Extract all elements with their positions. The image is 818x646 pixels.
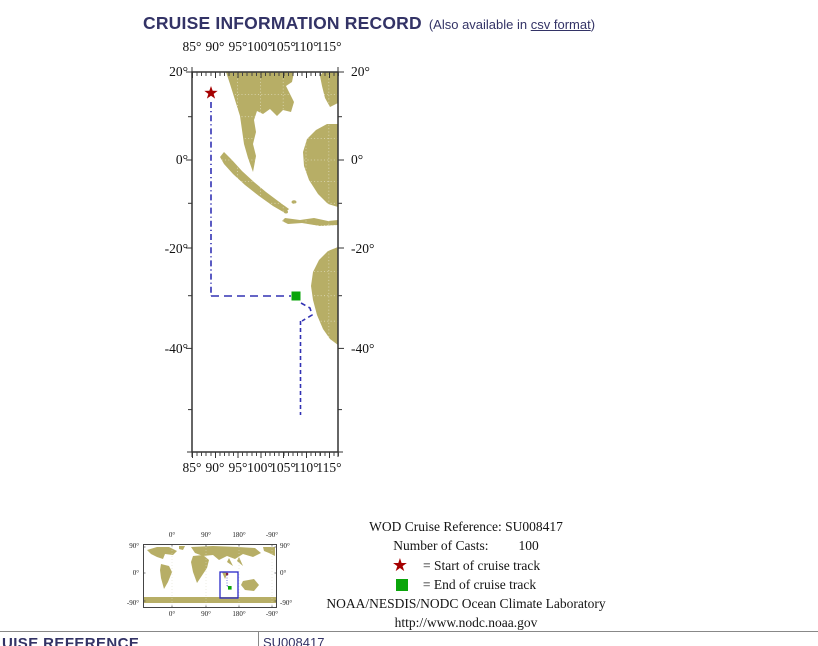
inset-lat-label: -90° [127, 599, 139, 607]
inset-lon-label: 90° [201, 610, 211, 618]
casts-value: 100 [519, 538, 539, 553]
world-inset-map [143, 544, 277, 608]
lon-label-top: 110° [293, 39, 318, 55]
lon-label-top: 115° [316, 39, 341, 55]
lon-label-bottom: 100° [247, 460, 273, 476]
lon-label-bottom: 105° [270, 460, 296, 476]
map-frame [192, 72, 338, 452]
availability-note: (Also available in csv format) [429, 17, 595, 32]
top-major-ticks [192, 72, 339, 78]
lon-label-bottom: 110° [293, 460, 318, 476]
inset-lon-label: -90° [266, 610, 278, 618]
cruise-track-line [211, 102, 312, 415]
bottom-major-ticks [192, 452, 339, 458]
inset-track-trace [227, 575, 229, 586]
inset-end-marker [228, 586, 232, 590]
record-row-label: UISE REFERENCE [2, 635, 139, 646]
lon-label-top: 85° [183, 39, 202, 55]
inset-region-box [220, 572, 238, 598]
inset-lat-label: 0° [133, 569, 139, 577]
inset-lat-label: 90° [280, 542, 290, 550]
graticule [192, 72, 338, 452]
start-of-track-star [204, 86, 217, 99]
cruise-reference-line: WOD Cruise Reference: SU008417 [300, 517, 632, 536]
lat-label-left: 0° [176, 152, 188, 168]
end-square-icon [396, 579, 408, 591]
inset-lon-label: 0° [169, 531, 175, 539]
availability-prefix: (Also available in [429, 17, 531, 32]
casts-line: Number of Casts:100 [300, 536, 632, 555]
availability-suffix: ) [591, 17, 595, 32]
legend-block: WOD Cruise Reference: SU008417 Number of… [300, 517, 632, 633]
lon-label-bottom: 90° [206, 460, 225, 476]
lat-label-right: -40° [351, 341, 374, 357]
inset-lat-label: 90° [129, 542, 139, 550]
inset-lon-label: -90° [266, 531, 278, 539]
website-line: http://www.nodc.noaa.gov [300, 613, 632, 632]
lon-label-top: 90° [206, 39, 225, 55]
inset-lon-label: 180° [232, 610, 245, 618]
inset-land [143, 546, 277, 603]
cruise-reference-label: WOD Cruise Reference: [369, 519, 502, 534]
land-masses [192, 72, 338, 452]
lon-label-bottom: 85° [183, 460, 202, 476]
lat-label-left: 20° [169, 64, 188, 80]
lon-label-bottom: 95° [229, 460, 248, 476]
page: CRUISE INFORMATION RECORD (Also availabl… [0, 0, 818, 646]
start-legend-text: = Start of cruise track [423, 556, 540, 575]
lat-label-right: -20° [351, 241, 374, 257]
lon-label-top: 100° [247, 39, 273, 55]
lat-label-right: 0° [351, 152, 363, 168]
organization-line: NOAA/NESDIS/NODC Ocean Climate Laborator… [300, 594, 632, 613]
end-of-track-square [292, 292, 301, 301]
end-legend-line: = End of cruise track [300, 575, 632, 594]
inset-lon-label: 0° [169, 610, 175, 618]
lon-label-top: 105° [270, 39, 296, 55]
cruise-reference-value: SU008417 [505, 519, 563, 534]
record-table: UISE REFERENCE SU008417 [0, 631, 818, 646]
header: CRUISE INFORMATION RECORD (Also availabl… [143, 13, 595, 34]
inset-lon-label: 90° [201, 531, 211, 539]
inset-lon-label: 180° [232, 531, 245, 539]
lon-label-bottom: 115° [316, 460, 341, 476]
inset-start-marker [226, 573, 228, 575]
lat-label-right: 20° [351, 64, 370, 80]
table-column-divider [258, 632, 259, 646]
start-legend-line: ★ = Start of cruise track [300, 556, 632, 575]
record-row-value: SU008417 [263, 635, 324, 646]
casts-label: Number of Casts: [393, 538, 488, 553]
inset-lat-label: 0° [280, 569, 286, 577]
csv-format-link[interactable]: csv format [531, 17, 591, 32]
lat-label-left: -40° [165, 341, 188, 357]
start-star-icon: ★ [392, 556, 408, 574]
lon-label-top: 95° [229, 39, 248, 55]
lat-label-left: -20° [165, 241, 188, 257]
cruise-track-map [182, 62, 348, 462]
end-legend-text: = End of cruise track [423, 575, 536, 594]
page-title: CRUISE INFORMATION RECORD [143, 13, 422, 34]
inset-lat-label: -90° [280, 599, 292, 607]
